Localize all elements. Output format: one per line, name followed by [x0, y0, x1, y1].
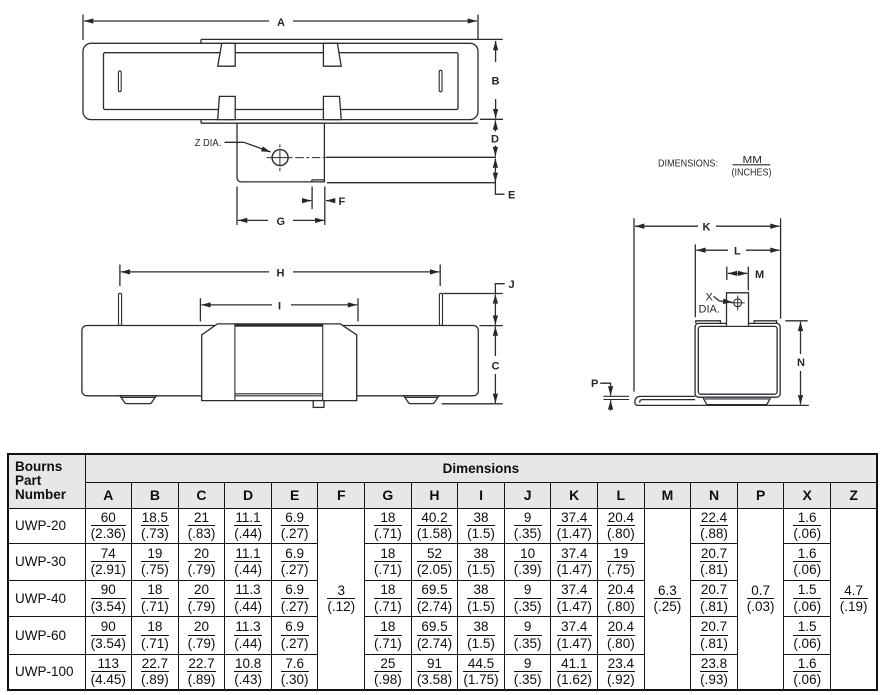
- svg-text:(INCHES): (INCHES): [732, 167, 772, 179]
- svg-text:DIA.: DIA.: [699, 303, 720, 315]
- svg-text:G: G: [277, 216, 286, 228]
- svg-text:B: B: [492, 76, 500, 88]
- svg-text:K: K: [703, 222, 711, 234]
- svg-text:DIMENSIONS:: DIMENSIONS:: [658, 158, 718, 170]
- svg-text:P: P: [591, 378, 598, 390]
- svg-text:D: D: [491, 134, 499, 146]
- svg-text:E: E: [508, 190, 515, 202]
- svg-text:M: M: [755, 269, 764, 281]
- svg-text:C: C: [492, 361, 500, 373]
- svg-text:A: A: [277, 17, 285, 29]
- svg-text:H: H: [277, 267, 285, 279]
- svg-text:MM: MM: [743, 154, 763, 166]
- svg-text:X: X: [706, 291, 714, 303]
- svg-text:L: L: [734, 246, 741, 258]
- svg-text:N: N: [797, 357, 805, 369]
- svg-text:I: I: [278, 300, 281, 312]
- svg-text:Z DIA.: Z DIA.: [195, 137, 222, 149]
- svg-text:F: F: [339, 196, 346, 208]
- svg-text:J: J: [509, 279, 515, 291]
